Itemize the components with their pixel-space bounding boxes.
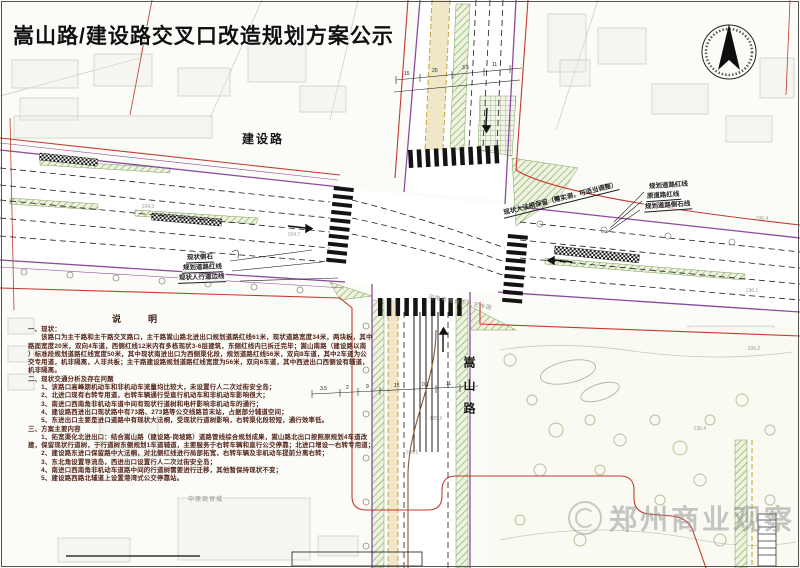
note-line: 路面宽度20米，双向4车道，西侧红线12米内有多栋现状3-6层建筑，东侧红线内已…: [28, 343, 364, 351]
svg-text:·104.7: ·104.7: [286, 232, 300, 238]
note-line: 三、方案主要内容: [28, 426, 364, 434]
svg-text:·136.1: ·136.1: [744, 288, 758, 294]
svg-text:·136.4: ·136.4: [692, 426, 706, 432]
svg-text:3.5: 3.5: [462, 65, 469, 71]
note-line: 2、建设路东进口保留路中大法桐，对北侧红线进行局部拓宽，右转车辆及非机动车提前分…: [28, 450, 364, 458]
note-line: 1、拓宽渠化北进出口：结合嵩山路（建设路-岗坡路）道路管线综合规划成果，嵩山路北…: [28, 434, 364, 442]
note-line: 2、北进口现有右转专用道，右转车辆通行受直行机动车和非机动车影响很大；: [28, 392, 364, 400]
note-line: 5、东进出口主要是进口道路中有现状大法桐，受现状行道树影响，右转渠化段较短，通行…: [28, 417, 364, 425]
note-line: 二、现状交通分析及存在问题: [28, 376, 364, 384]
svg-text:15: 15: [404, 71, 410, 77]
note-line: 该路口为主干路和主干路交叉路口，主干路嵩山路北进出口规划道路红线61米，现状道路…: [28, 334, 364, 342]
plan-sheet: 15 20 3.5 11 3.5 2 9 15 0.1 11 ·104.3 ·1…: [0, 0, 800, 568]
callout-planned-redline-left: 规划道路红线: [182, 263, 223, 273]
notes-block: 一、现状： 该路口为主干路和主干路交叉路口，主干路嵩山路北进出口规划道路红线61…: [28, 326, 364, 484]
svg-text:·106.4: ·106.4: [754, 216, 768, 222]
notes-heading: 说 明: [112, 312, 166, 325]
svg-text:20: 20: [432, 68, 438, 74]
note-line: 机非隔离。: [28, 367, 364, 375]
svg-text:·105.1: ·105.1: [404, 450, 418, 456]
svg-text:0.1: 0.1: [422, 382, 429, 388]
road-label-jianshe: 建设路: [242, 130, 284, 147]
watermark: 郑州商业观察: [568, 498, 795, 538]
note-line: 交专用道，机非隔离，人非共板；主干路建设路规划道路红线宽度为56米，双向6车道，…: [28, 359, 364, 367]
callout-existing-curb: 现状侧石: [186, 254, 214, 264]
svg-text:11: 11: [446, 381, 451, 387]
north-arrow-icon: [702, 24, 756, 79]
note-line: ）标准段规划道路红线宽度50米，其中现状南进出口为西侧渠化段，规划道路红线56米…: [28, 351, 364, 359]
bg-label-market: 中原商贸城: [188, 494, 223, 503]
note-line: 5、建设路西路北辅道上设置港湾式公交停靠站。: [28, 475, 364, 483]
svg-text:·104.3: ·104.3: [140, 204, 154, 210]
svg-text:·105.3: ·105.3: [428, 416, 442, 422]
note-line: 3、东北角设置导流岛，西进出口设置行人二次过街安全岛；: [28, 459, 364, 467]
road-label-songshan: 嵩山路: [461, 356, 478, 446]
svg-text:11: 11: [492, 62, 497, 68]
watermark-text: 郑州商业观察: [609, 498, 795, 538]
note-line: 3、南进口西南角非机动车道中间有现状行道树和电杆影响非机动车的通行；: [28, 401, 364, 409]
watermark-logo-icon: [568, 501, 602, 535]
page-title: 嵩山路/建设路交叉口改造规划方案公示: [13, 20, 394, 50]
svg-text:9: 9: [366, 384, 369, 390]
svg-text:15: 15: [394, 383, 400, 389]
svg-text:·106.2: ·106.2: [746, 346, 760, 352]
callout-existing-sidewalk-edge: 现状人行道边线: [178, 273, 226, 284]
